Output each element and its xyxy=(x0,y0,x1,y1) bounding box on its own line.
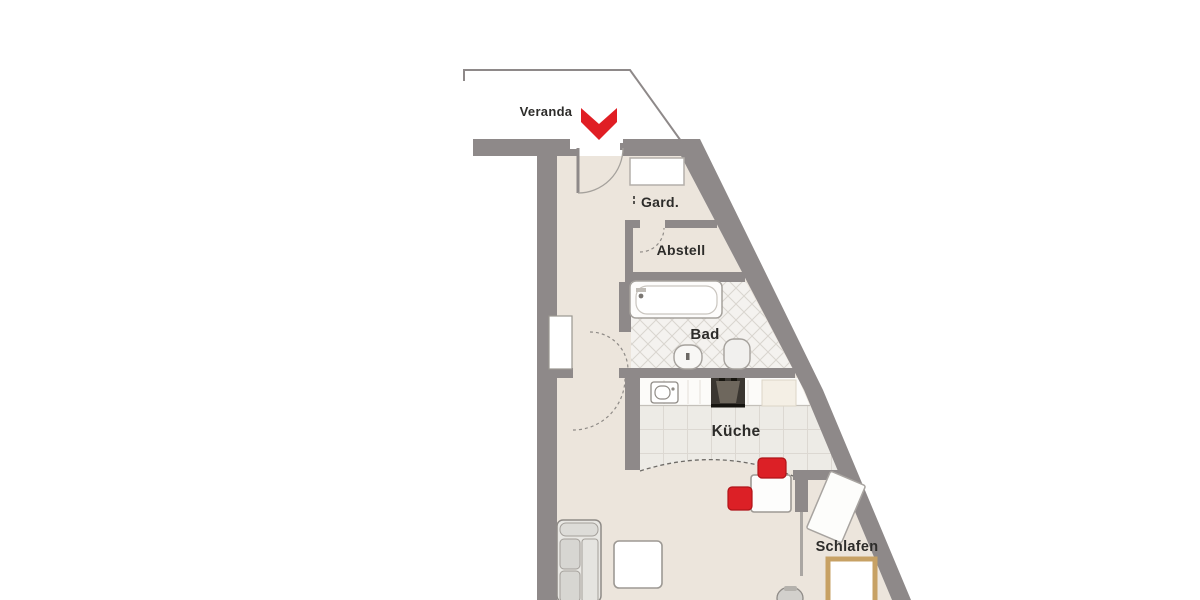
wardrobe xyxy=(630,158,684,185)
kitchen-cabinet xyxy=(762,380,796,406)
dining-chair xyxy=(728,487,752,510)
veranda-outline xyxy=(464,70,681,141)
coffee-table xyxy=(614,541,662,588)
entry-jamb-right xyxy=(620,143,628,150)
dining-table xyxy=(751,475,791,512)
room-label-veranda: Veranda xyxy=(520,104,573,119)
bathtub-faucet xyxy=(636,288,646,292)
floor-plan-svg: Veranda Gard. Abstell Bad Küche Schlafen xyxy=(0,0,1200,600)
washbasin xyxy=(674,345,702,369)
room-label-schlafen: Schlafen xyxy=(816,539,879,555)
wall-kitchen-left xyxy=(625,378,640,470)
kitchen-sink xyxy=(651,382,678,403)
wall-bad-left xyxy=(619,282,631,332)
bedroom-sliding-door xyxy=(800,512,803,576)
room-label-kueche: Küche xyxy=(712,423,761,440)
wall-abstell-right xyxy=(665,220,717,228)
floor-plan-canvas: Veranda Gard. Abstell Bad Küche Schlafen xyxy=(0,0,1200,600)
wall-bedroom-stub xyxy=(795,470,808,512)
bed xyxy=(828,559,875,600)
wall-left xyxy=(537,155,557,600)
stove xyxy=(711,377,745,408)
room-label-abstell: Abstell xyxy=(657,242,706,258)
entrance-chevron-icon xyxy=(581,108,617,140)
room-label-garderobe: Gard. xyxy=(641,194,679,210)
wall-bad-kitchen xyxy=(619,368,795,378)
bathtub xyxy=(630,281,722,318)
sofa xyxy=(557,520,601,600)
window xyxy=(549,316,572,369)
entry-jamb-left xyxy=(569,149,577,156)
toilet xyxy=(724,339,750,369)
kitchen-counter xyxy=(640,377,810,408)
dining-chair xyxy=(758,458,786,478)
wall-top-left xyxy=(473,139,570,156)
room-label-bad: Bad xyxy=(690,326,719,343)
